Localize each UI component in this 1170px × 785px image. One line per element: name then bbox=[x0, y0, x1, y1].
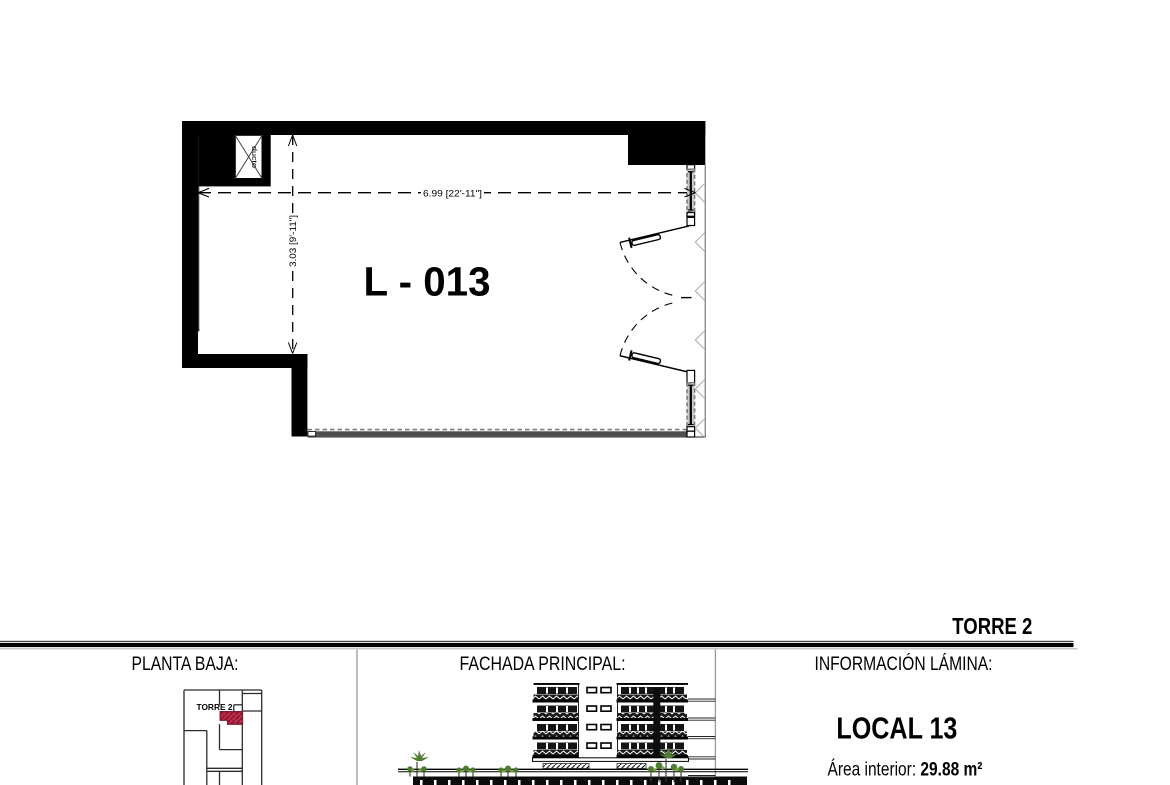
svg-text:3.03 [9'-11"]: 3.03 [9'-11"] bbox=[288, 215, 299, 267]
svg-text:INFORMACIÓN LÁMINA:: INFORMACIÓN LÁMINA: bbox=[815, 653, 993, 675]
svg-text:L - 013: L - 013 bbox=[364, 259, 491, 305]
svg-text:ducto: ducto bbox=[250, 146, 257, 168]
svg-text:6.99 [22'-11"]: 6.99 [22'-11"] bbox=[423, 188, 482, 199]
svg-text:TORRE 2: TORRE 2 bbox=[197, 703, 234, 712]
svg-text:TORRE 2: TORRE 2 bbox=[952, 613, 1032, 639]
svg-text:LOCAL 13: LOCAL 13 bbox=[836, 711, 957, 746]
svg-text:PLANTA BAJA:: PLANTA BAJA: bbox=[132, 654, 239, 675]
svg-text:Área interior: 29.88 m²: Área interior: 29.88 m² bbox=[828, 758, 983, 780]
svg-text:FACHADA PRINCIPAL:: FACHADA PRINCIPAL: bbox=[460, 654, 626, 675]
